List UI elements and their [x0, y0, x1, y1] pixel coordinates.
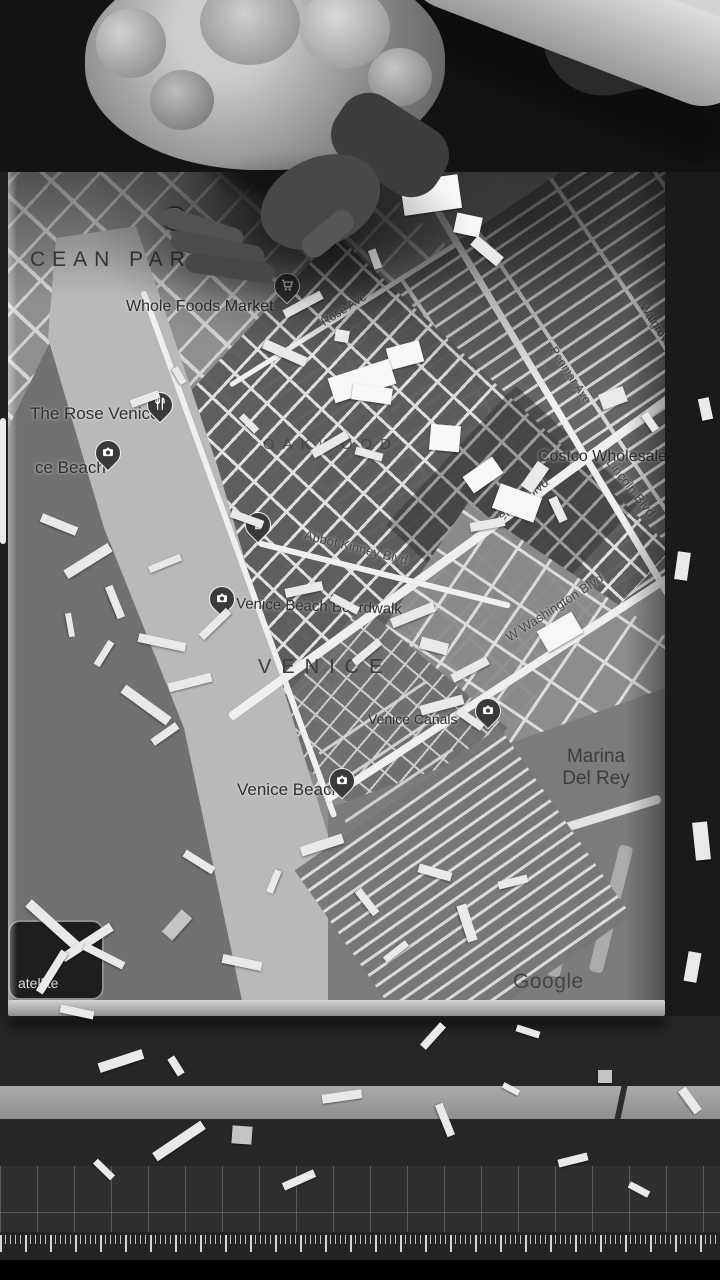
video-frame-photo: CEAN PARK OAKWOOD VENICE Marina Del Rey … — [0, 0, 720, 1280]
map-paper-shadow — [8, 1016, 665, 1028]
venice-canals-label: Venice Canals — [368, 711, 458, 727]
google-watermark: Google — [513, 970, 584, 994]
paper-scrap — [231, 1125, 252, 1144]
rose-venice-label: The Rose Venice — [30, 404, 159, 424]
hair-curl — [96, 8, 166, 78]
costco-label: Costco Wholesale — [538, 448, 665, 466]
paper-scrap — [334, 329, 350, 343]
letterbox-bar — [0, 1260, 720, 1280]
map-paper-edge-bottom — [8, 1000, 665, 1016]
marina-line1: Marina — [567, 746, 625, 767]
marina-del-rey-label: Marina Del Rey — [551, 746, 641, 790]
camera-pin-icon — [329, 768, 355, 794]
camera-pin-icon — [95, 440, 121, 466]
venice-beach-south-label: Venice Beach — [237, 780, 341, 800]
venice-label: VENICE — [258, 656, 392, 679]
marina-line2: Del Rey — [562, 768, 630, 789]
paper-scrap — [598, 1070, 612, 1083]
frame-edge-object — [0, 418, 6, 544]
paper-scrap — [429, 424, 461, 453]
map-paper-edge-left — [8, 168, 17, 1010]
camera-pin-icon — [209, 586, 235, 612]
ruler-scale — [0, 1232, 720, 1262]
hair-curl — [150, 70, 214, 130]
